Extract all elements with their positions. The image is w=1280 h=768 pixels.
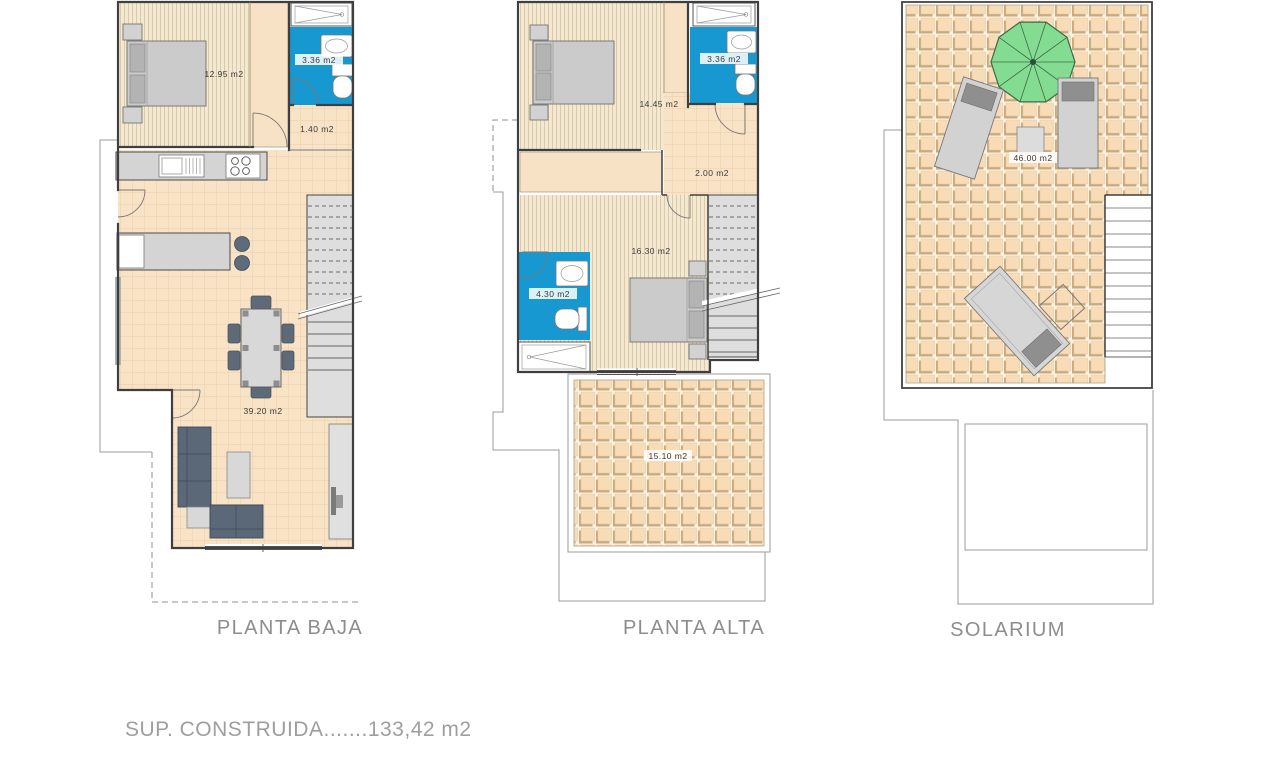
bathtub — [518, 342, 590, 372]
shower-tray — [291, 3, 352, 26]
plan-planta-alta: 14.45 m2 3.36 m2 2.00 m2 16.30 m2 4.30 m… — [493, 2, 780, 601]
nightstand — [123, 107, 142, 123]
built-area-summary: SUP. CONSTRUIDA.......133,42 m2 — [125, 718, 472, 741]
bar-stool — [235, 237, 250, 252]
terrace-floor — [574, 380, 764, 546]
lower-roof-outline — [965, 424, 1147, 550]
chair — [251, 296, 271, 309]
plan-planta-baja: 12.95 m2 3.36 m2 1.40 m2 39.20 m2 — [100, 2, 362, 602]
area-labels: 46.00 m2 — [1009, 152, 1057, 163]
tv-unit — [329, 424, 353, 539]
nightstand — [689, 261, 706, 276]
area-label-bedroom-second: 16.30 m2 — [631, 246, 670, 256]
coffee-table — [227, 452, 250, 498]
area-label-bathroom-ensuite: 4.30 m2 — [536, 289, 570, 299]
chair — [282, 351, 294, 370]
nightstand — [123, 24, 142, 40]
sun-lounger — [1058, 78, 1098, 168]
plan-solarium: 46.00 m2 — [884, 2, 1153, 604]
floorplan-sheet: 12.95 m2 3.36 m2 1.40 m2 39.20 m2 — [0, 0, 1280, 768]
side-table — [1017, 127, 1044, 153]
staircase — [702, 195, 780, 357]
wardrobe — [664, 2, 688, 93]
area-label-bedroom-main: 14.45 m2 — [639, 99, 678, 109]
area-label-terrace: 15.10 m2 — [648, 451, 687, 461]
staircase — [1105, 195, 1152, 357]
terrace — [568, 374, 770, 552]
plan-title-planta-baja: PLANTA BAJA — [217, 617, 363, 639]
lounger-pillow — [1062, 82, 1094, 101]
chair — [282, 324, 294, 343]
kitchen-island — [117, 233, 250, 271]
pillow — [689, 281, 704, 308]
area-label-bedroom: 12.95 m2 — [204, 69, 243, 79]
shower-tray — [693, 3, 755, 26]
bar-stool — [235, 256, 250, 271]
area-label-landing: 2.00 m2 — [695, 168, 729, 178]
area-label-living: 39.20 m2 — [243, 406, 282, 416]
pillow — [536, 73, 551, 100]
pillow — [130, 44, 145, 72]
kitchen-counter — [116, 152, 267, 180]
plan-title-planta-alta: PLANTA ALTA — [623, 617, 765, 639]
pillow — [689, 311, 704, 338]
pillow — [130, 75, 145, 103]
pillow — [536, 44, 551, 71]
area-label-hall: 1.40 m2 — [300, 124, 334, 134]
side-table — [187, 507, 210, 528]
wardrobe-band — [520, 152, 662, 192]
plan-title-solarium: SOLARIUM — [950, 619, 1066, 641]
nightstand — [530, 105, 548, 120]
area-label-bathroom-top: 3.36 m2 — [707, 54, 741, 64]
chair — [228, 324, 240, 343]
nightstand — [530, 25, 548, 40]
chair — [228, 351, 240, 370]
nightstand — [689, 344, 706, 359]
area-label-bathroom: 3.36 m2 — [302, 55, 336, 65]
floorplan-drawing: 12.95 m2 3.36 m2 1.40 m2 39.20 m2 — [0, 0, 1280, 768]
area-label-roof-terrace: 46.00 m2 — [1013, 153, 1052, 163]
wardrobe — [250, 2, 288, 147]
